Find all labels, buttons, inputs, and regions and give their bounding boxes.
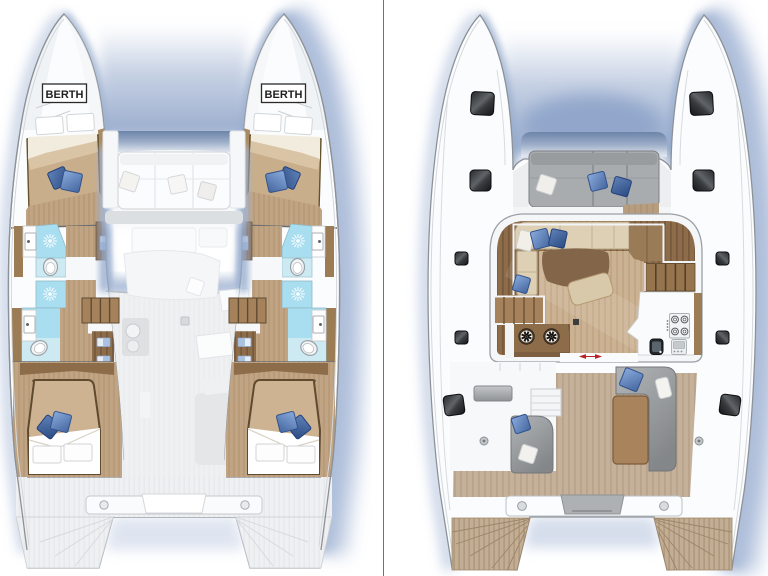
svg-text:BERTH: BERTH [46, 89, 84, 101]
svg-text:BERTH: BERTH [265, 89, 303, 101]
